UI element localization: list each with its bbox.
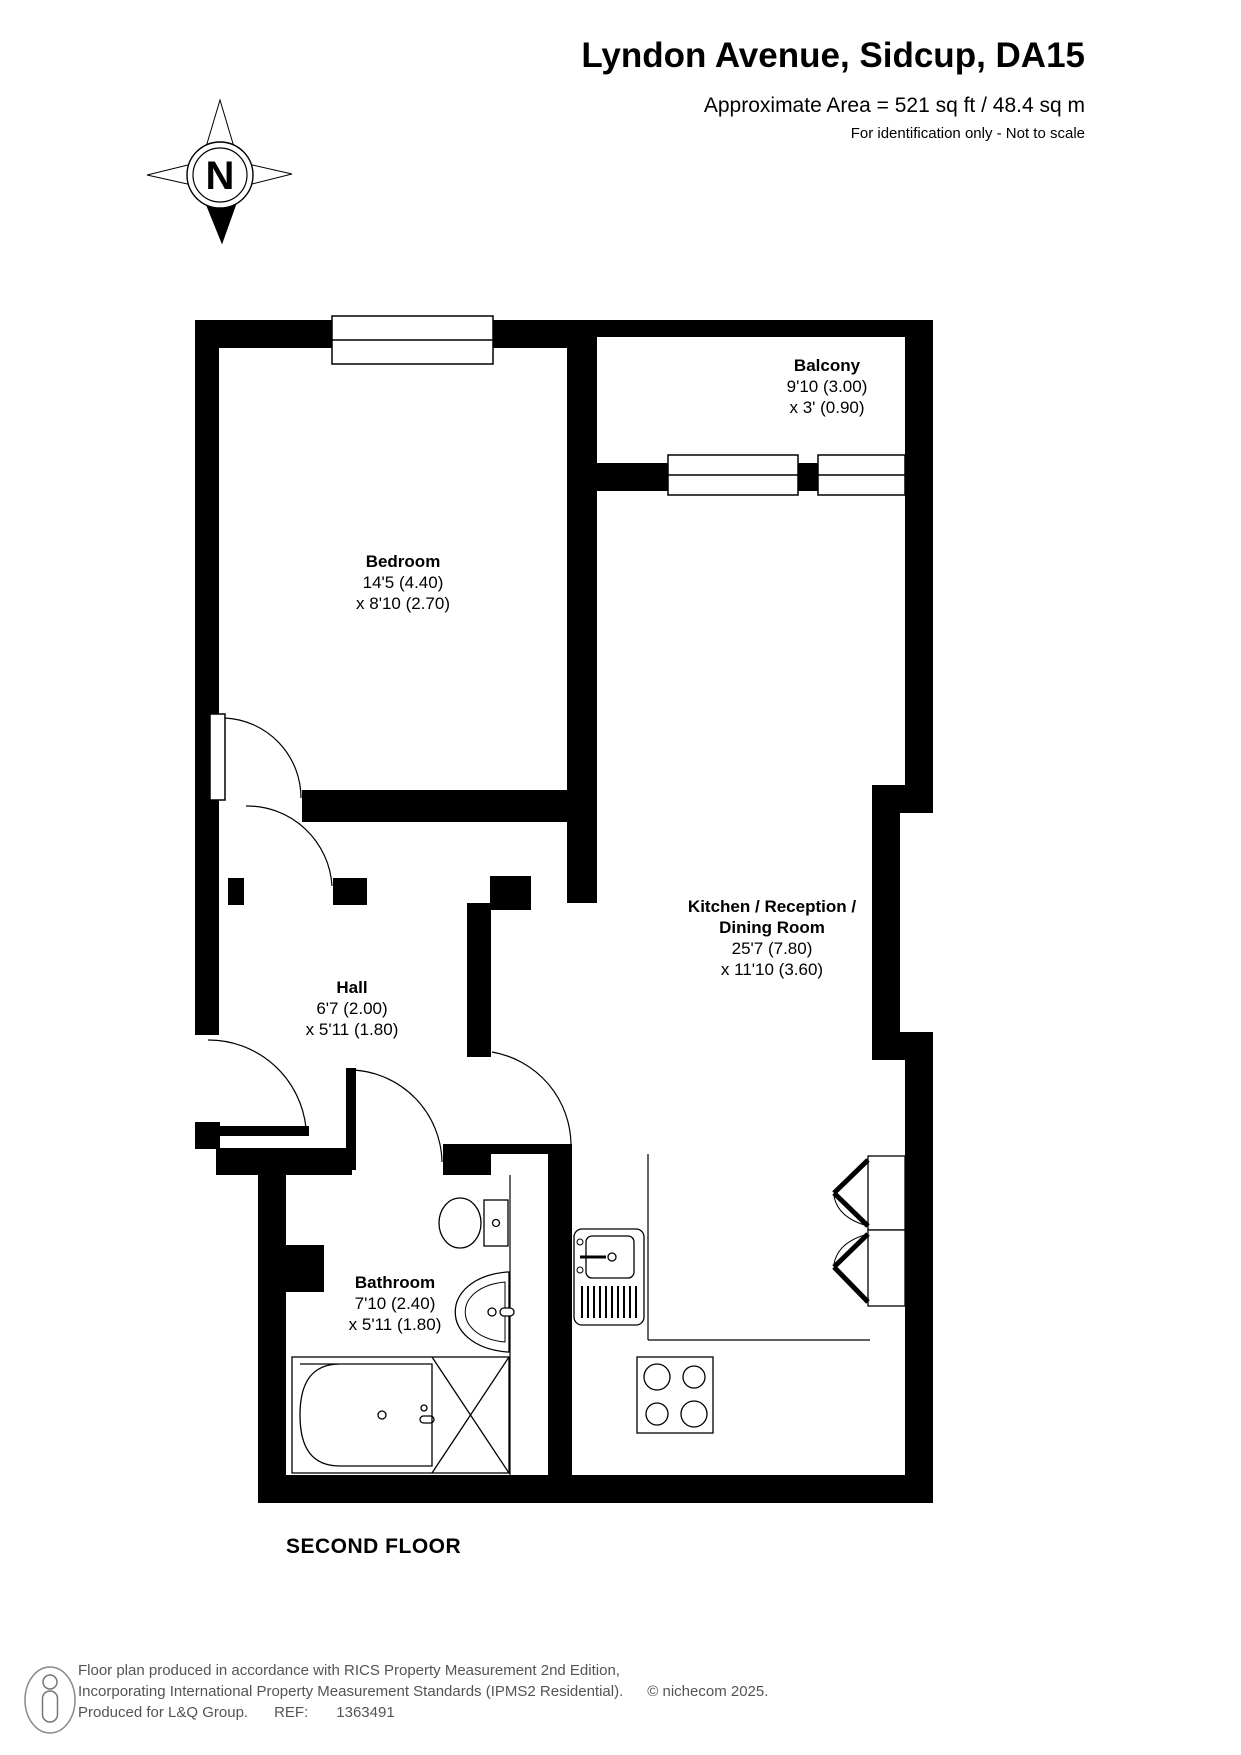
wall-right-upper — [905, 320, 933, 813]
bedroom-window-icon — [332, 316, 493, 364]
kitchen-sink-icon — [574, 1229, 644, 1325]
floor-label: SECOND FLOOR — [286, 1535, 461, 1559]
wall-left — [195, 320, 219, 1035]
bathtub-icon — [292, 1357, 509, 1473]
footer-text: Floor plan produced in accordance with R… — [78, 1660, 768, 1723]
hob-icon — [637, 1357, 713, 1433]
room-name: Hall — [306, 977, 399, 998]
room-label-bathroom: Bathroom 7'10 (2.40) x 5'11 (1.80) — [349, 1272, 442, 1335]
wall-bottom — [258, 1475, 933, 1503]
entrance-door-icon — [208, 1040, 309, 1136]
wall-right-mid — [872, 813, 900, 1035]
wall-right-jog-top — [872, 785, 933, 813]
room-dim: x 5'11 (1.80) — [349, 1314, 442, 1335]
wall-bathroom-top-left — [216, 1148, 352, 1175]
wall-bathroom-left — [258, 1175, 286, 1475]
room-name: Balcony — [787, 355, 868, 376]
bedroom-door-icon — [210, 714, 301, 800]
room-name: Bedroom — [356, 551, 450, 572]
room-dim: 14'5 (4.40) — [356, 572, 450, 593]
room-label-kitchen: Kitchen / Reception / Dining Room 25'7 (… — [688, 896, 856, 980]
toilet-icon — [439, 1198, 508, 1248]
bathroom-door-icon — [346, 1068, 442, 1170]
floorplan-page: Lyndon Avenue, Sidcup, DA15 Approximate … — [0, 0, 1241, 1755]
balcony-door-window-icon — [818, 455, 905, 495]
kitchen-door-icon — [491, 1052, 572, 1154]
room-dim: x 11'10 (3.60) — [688, 959, 856, 980]
wall-top-balcony — [597, 320, 933, 337]
wall-bedroom-right — [567, 337, 597, 903]
room-dim: 9'10 (3.00) — [787, 376, 868, 397]
wall-right-lower — [905, 1060, 933, 1503]
footer-copyright: © nichecom 2025. — [647, 1683, 768, 1700]
balcony-window-icon — [668, 455, 798, 495]
wall-right-jog-bottom — [872, 1032, 933, 1060]
footer-standards: Incorporating International Property Mea… — [78, 1683, 623, 1700]
room-label-bedroom: Bedroom 14'5 (4.40) x 8'10 (2.70) — [356, 551, 450, 614]
room-name: Bathroom — [349, 1272, 442, 1293]
person-icon — [22, 1664, 78, 1736]
room-name: Kitchen / Reception / — [688, 896, 856, 917]
wall-stub-a — [228, 878, 244, 905]
wall-kitchen-counter-side — [548, 1151, 572, 1475]
wall-stub-b — [333, 878, 367, 905]
footer-line-3: Produced for L&Q Group.REF:1363491 — [78, 1702, 768, 1723]
room-dim: x 8'10 (2.70) — [356, 593, 450, 614]
room-name: Dining Room — [688, 917, 856, 938]
room-label-balcony: Balcony 9'10 (3.00) x 3' (0.90) — [787, 355, 868, 418]
footer-produced-for: Produced for L&Q Group. — [78, 1704, 248, 1721]
kitchen-cupboards-icon — [834, 1156, 905, 1306]
footer-line-2: Incorporating International Property Mea… — [78, 1681, 768, 1702]
wash-basin-icon — [455, 1272, 514, 1352]
room-dim: x 5'11 (1.80) — [306, 1019, 399, 1040]
footer-ref-number: 1363491 — [336, 1704, 394, 1721]
wall-bathroom-top-right — [443, 1144, 491, 1175]
wall-bedroom-bottom — [302, 790, 567, 822]
footer-line-1: Floor plan produced in accordance with R… — [78, 1660, 768, 1681]
footer-ref-label: REF: — [274, 1704, 308, 1721]
room-dim: 25'7 (7.80) — [688, 938, 856, 959]
wall-pillar — [490, 876, 531, 910]
room-dim: 7'10 (2.40) — [349, 1293, 442, 1314]
wall-bathroom-bump — [286, 1245, 324, 1292]
room-dim: x 3' (0.90) — [787, 397, 868, 418]
wall-hall-right — [467, 903, 491, 1057]
doors — [208, 714, 572, 1170]
room-label-hall: Hall 6'7 (2.00) x 5'11 (1.80) — [306, 977, 399, 1040]
room-dim: 6'7 (2.00) — [306, 998, 399, 1019]
floorplan-drawing — [0, 0, 1241, 1755]
